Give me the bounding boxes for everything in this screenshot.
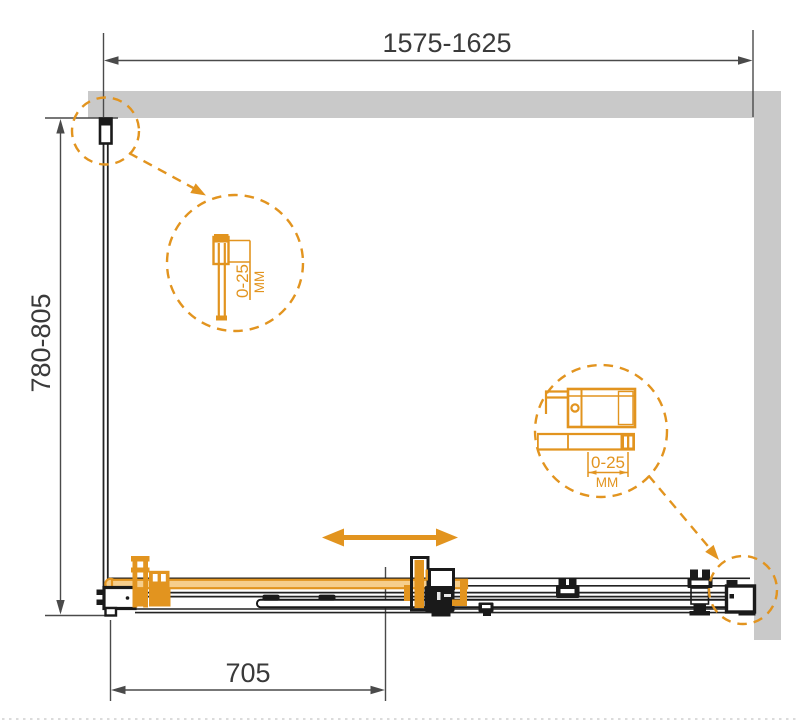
callout-leader-1 xyxy=(129,153,197,190)
top-wall xyxy=(88,91,754,118)
door-width-label: 705 xyxy=(225,658,270,688)
roller-unit-label: MM xyxy=(596,475,619,490)
left-roller-carriage xyxy=(131,556,171,608)
wall-profile-range-label: 0-25 xyxy=(233,264,252,298)
walls xyxy=(88,91,781,640)
depth-dimension-label: 780-805 xyxy=(26,293,56,392)
callout-leader-1-arrow xyxy=(190,183,206,195)
wall-profile-unit-label: MM xyxy=(252,271,267,294)
drawing-svg: 1575-1625 780-805 705 xyxy=(0,0,800,725)
detail-callout-roller: 0-25 MM xyxy=(535,365,667,497)
door-clip xyxy=(319,595,336,601)
right-wall xyxy=(754,91,781,640)
wall-profile-top xyxy=(100,119,112,144)
rail-clip-under xyxy=(479,603,494,617)
roller-range-label: 0-25 xyxy=(591,453,625,472)
detail-callout-wall-profile: 0-25 MM xyxy=(167,195,303,331)
width-dimension-label: 1575-1625 xyxy=(382,28,511,58)
callout-leader-2-arrow xyxy=(705,545,719,560)
callout-leader-2 xyxy=(649,476,713,552)
right-wall-bracket xyxy=(727,580,756,616)
technical-drawing: 1575-1625 780-805 705 xyxy=(0,0,800,725)
side-glass-panel xyxy=(104,144,108,589)
slide-direction-arrow-icon xyxy=(322,529,458,547)
rail-clip-center xyxy=(556,578,580,599)
wall-profile-bottom xyxy=(97,588,136,616)
door-clip xyxy=(263,595,280,601)
